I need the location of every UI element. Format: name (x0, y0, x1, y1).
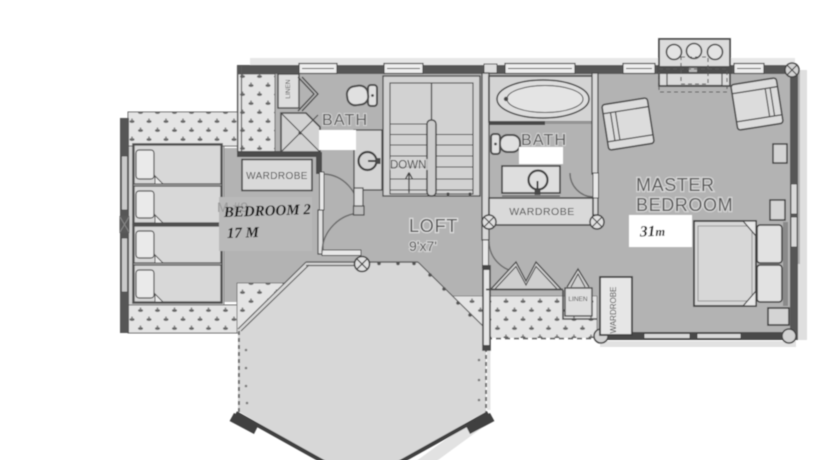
svg-text:LINEN: LINEN (568, 296, 587, 303)
svg-text:WARDROBE: WARDROBE (246, 171, 308, 182)
svg-text:31m: 31m (639, 223, 666, 241)
svg-text:BATH: BATH (521, 132, 567, 149)
svg-text:BEDROOM 2: BEDROOM 2 (223, 202, 312, 221)
svg-text:DOWN: DOWN (390, 160, 426, 172)
svg-text:WARDROBE: WARDROBE (509, 206, 574, 218)
svg-text:MASTER: MASTER (636, 175, 715, 195)
svg-text:BATH: BATH (322, 112, 368, 129)
svg-text:LINEN: LINEN (285, 79, 292, 98)
svg-text:9'x7': 9'x7' (409, 238, 437, 254)
svg-text:LOFT: LOFT (409, 216, 458, 236)
svg-text:WARDROBE: WARDROBE (609, 287, 618, 334)
svg-text:BEDROOM: BEDROOM (636, 195, 733, 215)
svg-text:17 M: 17 M (227, 225, 260, 242)
